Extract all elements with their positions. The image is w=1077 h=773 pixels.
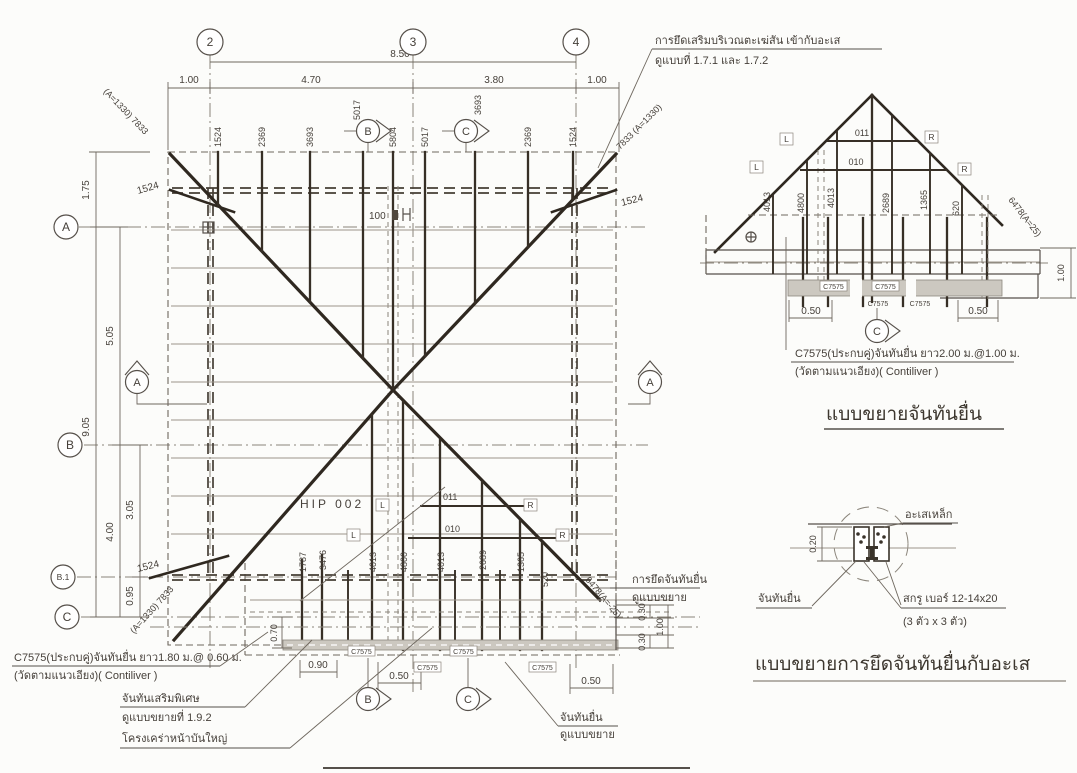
rafter-label: 520	[540, 572, 550, 587]
roof-framing-drawing: 8.50 1.00 4.70 3.80 1.00 1.75 9.05 5.05 …	[0, 0, 1077, 773]
grid-bubble-2: 2	[207, 35, 214, 49]
rafter-label: 1524	[213, 127, 223, 147]
tag-L: L	[784, 134, 789, 144]
rafter-label: 5017	[352, 100, 362, 120]
note-left-line2: (วัดตามแนวเอียง)( Contiliver )	[14, 669, 157, 682]
dim-label-070: 0.70	[269, 624, 279, 642]
channel-tag: C7575	[417, 665, 438, 672]
gable-detail	[700, 95, 1048, 306]
member-011-label: 011	[443, 492, 457, 502]
gable-diag-label: 6478(A=25)	[1006, 195, 1043, 238]
plan-rafter-labels-bottom: 1787 3476 4013 4800 4013 2689 1365 520	[298, 550, 550, 587]
section-mark-C-bottom: C	[464, 694, 472, 706]
joint-screw-label2: (3 ตัว x 3 ตัว)	[903, 616, 967, 628]
tag-R: R	[527, 500, 533, 510]
note-top-line2: ดูแบบที่ 1.7.1 และ 1.7.2	[655, 52, 768, 67]
hip-label-tr: 7833 (A=1330)	[614, 102, 663, 151]
dim-label-090: 0.90	[308, 660, 328, 671]
rafter-label: 1524	[568, 127, 578, 147]
gable-title: แบบขยายจันทันยื่น	[826, 400, 982, 425]
dim-gable-100: 1.00	[1056, 264, 1066, 282]
dim-label-400: 4.00	[105, 522, 116, 542]
tag-L: L	[380, 500, 385, 510]
section-mark-A-right: A	[646, 377, 654, 389]
dim-label-175: 1.75	[81, 180, 92, 200]
dim-label-505: 5.05	[105, 326, 116, 346]
stud-label: 4800	[796, 193, 806, 213]
dim-label-050-right: 0.50	[581, 676, 601, 687]
plan-rafter-labels-top: 1524 2369 3693 5017 5804 5017 3693 2369 …	[213, 95, 578, 147]
rafter-label: 2689	[478, 550, 488, 570]
note-right-line1: การยึดจันทันยื่น	[632, 571, 708, 586]
dim-label-030a: 0.30	[637, 603, 647, 621]
gable-010-label: 010	[848, 157, 863, 167]
jack-label-tl: 1524	[136, 180, 161, 197]
tag-L: L	[351, 530, 356, 540]
plan-annotations: การยึดเสริมบริเวณตะเฆ่สัน เข้ากับอะเส ดู…	[12, 35, 882, 768]
stud-label: 4013	[826, 188, 836, 208]
channel-tag: C7575	[453, 649, 474, 656]
section-mark-A-left: A	[133, 377, 141, 389]
dim-label-095: 0.95	[125, 586, 136, 606]
hip-id-label: HIP 002	[300, 497, 364, 511]
joint-screw-label1: สกรู เบอร์ 12-14x20	[903, 592, 998, 605]
dim-020: 0.20	[808, 535, 818, 553]
dim-label-305: 3.05	[125, 500, 136, 520]
channel-tag: C7575	[532, 665, 553, 672]
grid-bubble-B1: B.1	[57, 572, 70, 582]
rafter-label: 1365	[516, 552, 526, 572]
joint-purlin-label: อะเสเหล็ก	[905, 507, 952, 521]
dim-label-030b: 0.30	[637, 633, 647, 651]
gable-011-label: 011	[855, 128, 869, 138]
joint-title: แบบขยายการยึดจันทันยื่นกับอะเส	[755, 650, 1031, 675]
section-mark-B-top: B	[364, 126, 371, 138]
tag-R: R	[928, 132, 934, 142]
note-special-rafter-ref: ดูแบบขยายที่ 1.9.2	[122, 709, 212, 724]
note-left-line1: C7575(ประกบคู่)จันทันยื่น ยาว1.80 ม.@ 0.…	[14, 649, 242, 664]
note-bottom-line1: จันทันยื่น	[560, 709, 603, 724]
stud-label: 2689	[881, 193, 891, 213]
hip-label-br: 6478(A=-25)	[583, 575, 623, 620]
rafter-label: 2369	[523, 127, 533, 147]
hip-label-tl: (A=1330) 7833	[102, 86, 151, 136]
tag-R: R	[559, 530, 565, 540]
rafter-label: 3693	[473, 95, 483, 115]
jack-label-tr: 1524	[620, 193, 645, 209]
rafter-label: 4013	[368, 552, 378, 572]
rafter-label: 4800	[399, 552, 409, 572]
section-mark-C-gable: C	[873, 326, 881, 338]
joint-rafter-label: จันทันยื่น	[758, 590, 801, 605]
section-mark-B-bottom: B	[364, 694, 371, 706]
dim-label-span23: 4.70	[301, 75, 321, 86]
gable-section-mark: C	[866, 308, 901, 343]
dim-label-left-oh: 1.00	[179, 75, 199, 86]
dim-label-span34: 3.80	[484, 75, 504, 86]
grid-bubble-3: 3	[410, 35, 417, 49]
note-right-line2: ดูแบบขยาย	[632, 592, 687, 604]
rafter-label: 5017	[420, 127, 430, 147]
drawing-sheet: 8.50 1.00 4.70 3.80 1.00 1.75 9.05 5.05 …	[0, 0, 1077, 773]
stud-label: 1365	[919, 190, 929, 210]
tag-R: R	[961, 164, 967, 174]
dim-label-050-left: 0.50	[389, 671, 409, 682]
dim-label-905: 9.05	[81, 417, 92, 437]
note-bottom-line2: ดูแบบขยาย	[560, 729, 615, 741]
label-100: 100	[369, 211, 386, 222]
dim-label-100-right: 1.00	[655, 618, 665, 636]
section-mark-C-top: C	[462, 126, 470, 138]
grid-bubble-B: B	[66, 438, 74, 452]
note-gable-frame: โครงเคร่าหน้าบันใหญ่	[122, 731, 227, 745]
tag-L: L	[754, 162, 759, 172]
dim-gable-050-right: 0.50	[968, 306, 988, 317]
note-top-line1: การยึดเสริมบริเวณตะเฆ่สัน เข้ากับอะเส	[655, 35, 841, 47]
grid-bubble-A: A	[62, 220, 70, 234]
rafter-label: 4013	[436, 552, 446, 572]
dim-label-right-oh: 1.00	[587, 75, 607, 86]
grid-bubble-C: C	[63, 610, 72, 624]
dim-gable-050-left: 0.50	[801, 306, 821, 317]
stud-label: 620	[951, 201, 961, 216]
rafter-label: 3476	[318, 550, 328, 570]
rafter-label: 5804	[388, 127, 398, 147]
channel-tag: C7575	[351, 649, 372, 656]
channel-tag: C7575	[875, 284, 896, 291]
stud-label: 4013	[762, 192, 772, 212]
plan-common-rafters-bottom	[302, 402, 542, 650]
member-010-label: 010	[445, 524, 460, 534]
rafter-label: 1787	[298, 552, 308, 572]
channel-tag: C7575	[910, 301, 931, 308]
plan-hip-rafters	[150, 154, 616, 640]
gable-note-line1: C7575(ประกบคู่)จันทันยื่น ยาว2.00 ม.@1.0…	[795, 345, 1020, 360]
gable-note-line2: (วัดตามแนวเอียง)( Contiliver )	[795, 365, 938, 378]
joint-labels: อะเสเหล็ก จันทันยื่น สกรู เบอร์ 12-14x20…	[753, 507, 1066, 681]
rafter-label: 2369	[257, 127, 267, 147]
rafter-label: 3693	[305, 127, 315, 147]
note-special-rafter: จันทันเสริมพิเศษ	[122, 693, 200, 705]
channel-tag: C7575	[823, 284, 844, 291]
grid-bubble-4: 4	[573, 35, 580, 49]
channel-tag: C7575	[868, 301, 889, 308]
